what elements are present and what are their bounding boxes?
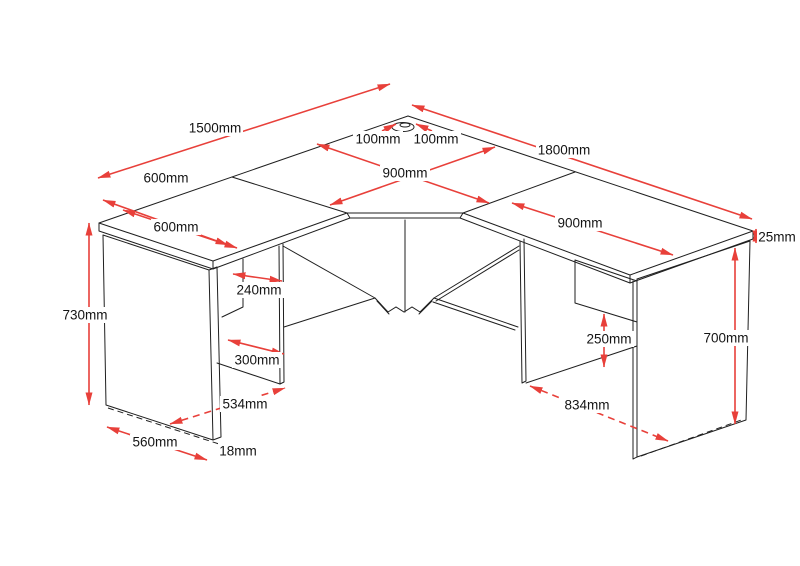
dim-label-100mm-right: 100mm — [411, 131, 461, 147]
dim-text-25mm: 25mm — [758, 230, 796, 245]
dim-label-25mm: 25mm — [757, 229, 797, 245]
dim-text-730mm: 730mm — [62, 308, 107, 323]
dim-label-834mm: 834mm — [562, 397, 612, 413]
dim-text-900mm-corner: 900mm — [382, 166, 427, 181]
dim-label-300mm: 300mm — [232, 352, 282, 368]
dim-label-560mm: 560mm — [130, 434, 180, 450]
arrow-1800mm — [412, 105, 752, 219]
arrow-100mm-right — [416, 124, 432, 131]
dim-label-600mm-surface: 600mm — [151, 219, 201, 235]
right-modesty-panel — [575, 260, 637, 322]
dim-text-900mm-right: 900mm — [557, 216, 602, 231]
dim-label-600mm-end: 600mm — [141, 170, 191, 186]
dim-text-560mm: 560mm — [132, 435, 177, 450]
dim-text-600mm-end: 600mm — [143, 171, 188, 186]
dimension-labels: 1500mm 600mm 600mm 100mm 100mm 900mm 180… — [60, 120, 797, 459]
dim-label-100mm-left: 100mm — [353, 131, 403, 147]
dim-text-100mm-right: 100mm — [413, 132, 458, 147]
dim-label-534mm: 534mm — [220, 396, 270, 412]
dim-text-534mm: 534mm — [222, 397, 267, 412]
dim-text-240mm: 240mm — [236, 283, 281, 298]
right-side-panel — [633, 241, 750, 459]
dim-text-1500mm: 1500mm — [189, 121, 242, 136]
right-inner-panel — [520, 239, 637, 383]
corner-desk-technical-drawing: 1500mm 600mm 600mm 100mm 100mm 900mm 180… — [0, 0, 800, 566]
dim-label-900mm-corner: 900mm — [380, 165, 430, 181]
dim-label-900mm-right: 900mm — [555, 215, 605, 231]
dim-text-300mm: 300mm — [234, 353, 279, 368]
dim-label-700mm: 700mm — [701, 330, 751, 346]
dim-text-834mm: 834mm — [564, 398, 609, 413]
dim-text-100mm-left: 100mm — [355, 132, 400, 147]
dim-text-18mm: 18mm — [219, 444, 257, 459]
dim-label-18mm: 18mm — [218, 443, 258, 459]
left-side-panel — [103, 235, 221, 444]
dim-text-1800mm: 1800mm — [538, 143, 591, 158]
arrow-240mm — [233, 274, 282, 281]
drawing-page: 1500mm 600mm 600mm 100mm 100mm 900mm 180… — [0, 0, 800, 566]
dim-label-1500mm: 1500mm — [187, 120, 243, 136]
dim-text-250mm: 250mm — [586, 332, 631, 347]
corner-modesty-panels — [375, 220, 519, 330]
dim-label-730mm: 730mm — [60, 307, 110, 323]
arrow-834mm — [530, 386, 668, 441]
dim-label-1800mm: 1800mm — [536, 142, 592, 158]
dim-text-700mm: 700mm — [703, 331, 748, 346]
dim-label-250mm: 250mm — [584, 331, 634, 347]
dim-label-240mm: 240mm — [234, 282, 284, 298]
arrow-1500mm — [98, 84, 390, 178]
dim-text-600mm-surface: 600mm — [153, 220, 198, 235]
